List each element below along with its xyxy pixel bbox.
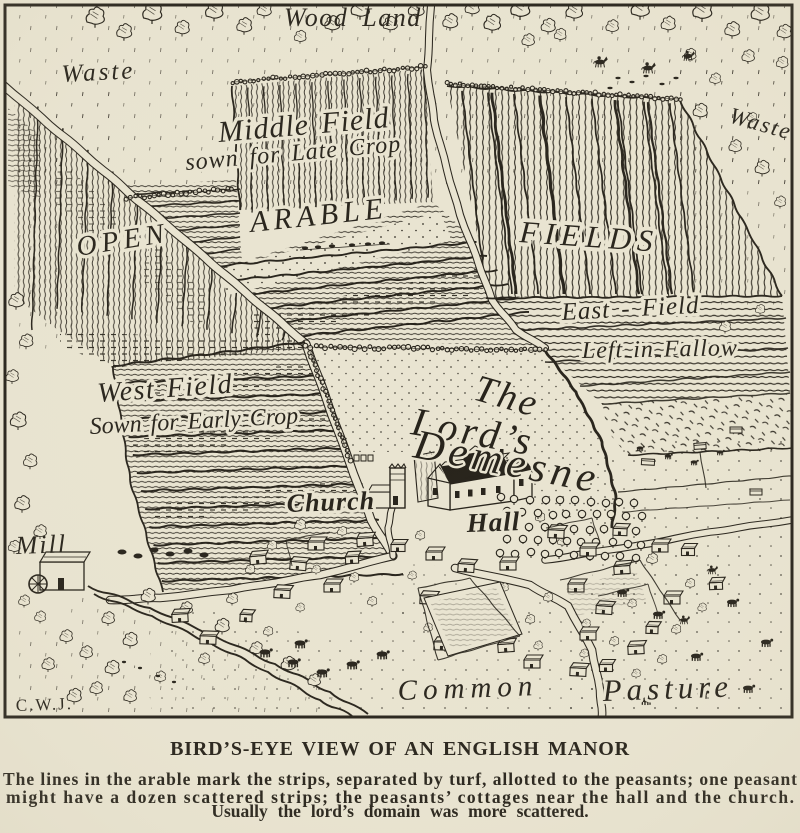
svg-text:C.W.J.: C.W.J. — [15, 694, 73, 715]
svg-text:Waste: Waste — [61, 57, 136, 88]
svg-text:Left in Fallow: Left in Fallow — [581, 335, 738, 364]
svg-text:Church: Church — [286, 486, 375, 518]
svg-text:Wood Land: Wood Land — [284, 3, 422, 32]
svg-text:Hall: Hall — [465, 506, 521, 538]
svg-text:BIRD’S-EYE VIEW OF AN ENGLISH: BIRD’S-EYE VIEW OF AN ENGLISH MANOR — [170, 738, 630, 760]
svg-text:The lines in the arable mark t: The lines in the arable mark the strips,… — [3, 769, 797, 789]
svg-text:Common: Common — [397, 670, 539, 707]
svg-text:Pasture: Pasture — [601, 668, 733, 708]
svg-text:Usually the lord’s domain was: Usually the lord’s domain was more scatt… — [211, 801, 588, 821]
svg-text:Mill: Mill — [14, 529, 67, 560]
